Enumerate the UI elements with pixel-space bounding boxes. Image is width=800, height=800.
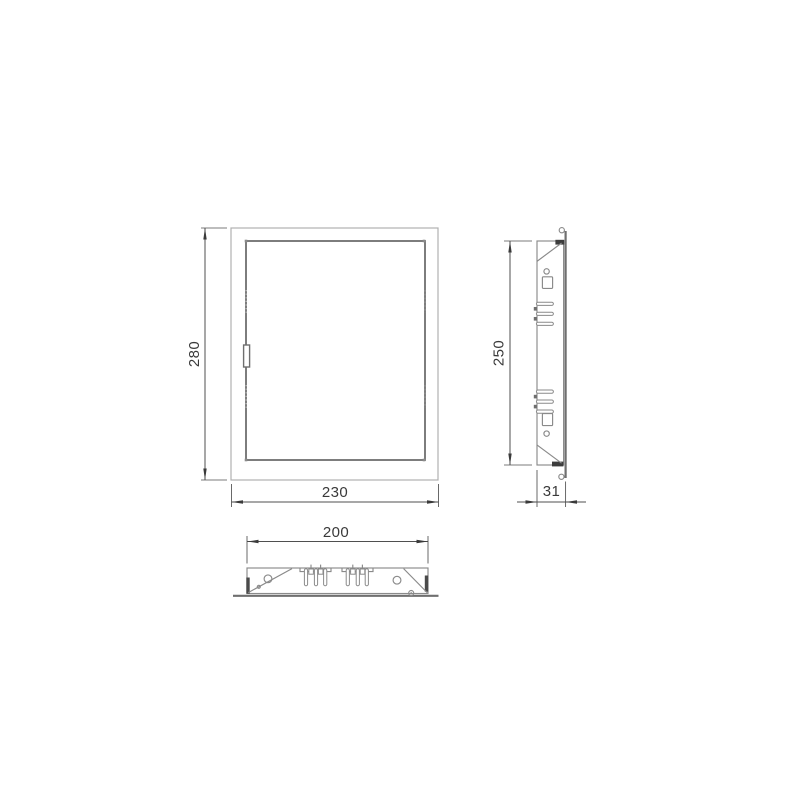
- front-door-panel: [246, 241, 425, 460]
- bottom-view: [233, 565, 439, 596]
- side-face-corner-top: [559, 228, 564, 233]
- arrowhead: [232, 500, 244, 503]
- dim-front-width: 230: [232, 484, 439, 507]
- dim-bottom-width: 200: [247, 524, 428, 564]
- bottom-section-fill-left: [246, 578, 249, 594]
- arrowhead: [417, 540, 429, 543]
- dim-label-side-height: 250: [491, 340, 508, 366]
- arrowhead: [203, 228, 206, 240]
- door-handle: [244, 345, 250, 367]
- dim-label-bottom-width: 200: [323, 524, 349, 541]
- front-view: [231, 228, 438, 480]
- technical-drawing-canvas: 280 230: [0, 0, 800, 800]
- arrowhead: [427, 500, 439, 503]
- arrowhead: [203, 469, 206, 481]
- dim-label-front-width: 230: [322, 484, 348, 501]
- dim-side-height: 250: [491, 241, 533, 465]
- dim-label-side-depth: 31: [543, 483, 561, 500]
- side-face-corner-bottom: [559, 474, 564, 479]
- arrowhead: [247, 540, 259, 543]
- arrowhead: [526, 500, 538, 503]
- arrowhead: [508, 241, 511, 253]
- drawing-sheet: 280 230: [0, 0, 800, 800]
- arrowhead: [508, 454, 511, 466]
- side-view: [534, 228, 566, 480]
- arrowhead: [566, 500, 577, 503]
- bottom-section-fill-right: [425, 576, 428, 592]
- side-section-fill-bottom: [552, 462, 563, 467]
- side-body-outline: [537, 241, 564, 465]
- dim-front-height: 280: [186, 228, 227, 480]
- dim-side-depth: 31: [517, 470, 586, 507]
- dim-label-front-height: 280: [186, 341, 203, 367]
